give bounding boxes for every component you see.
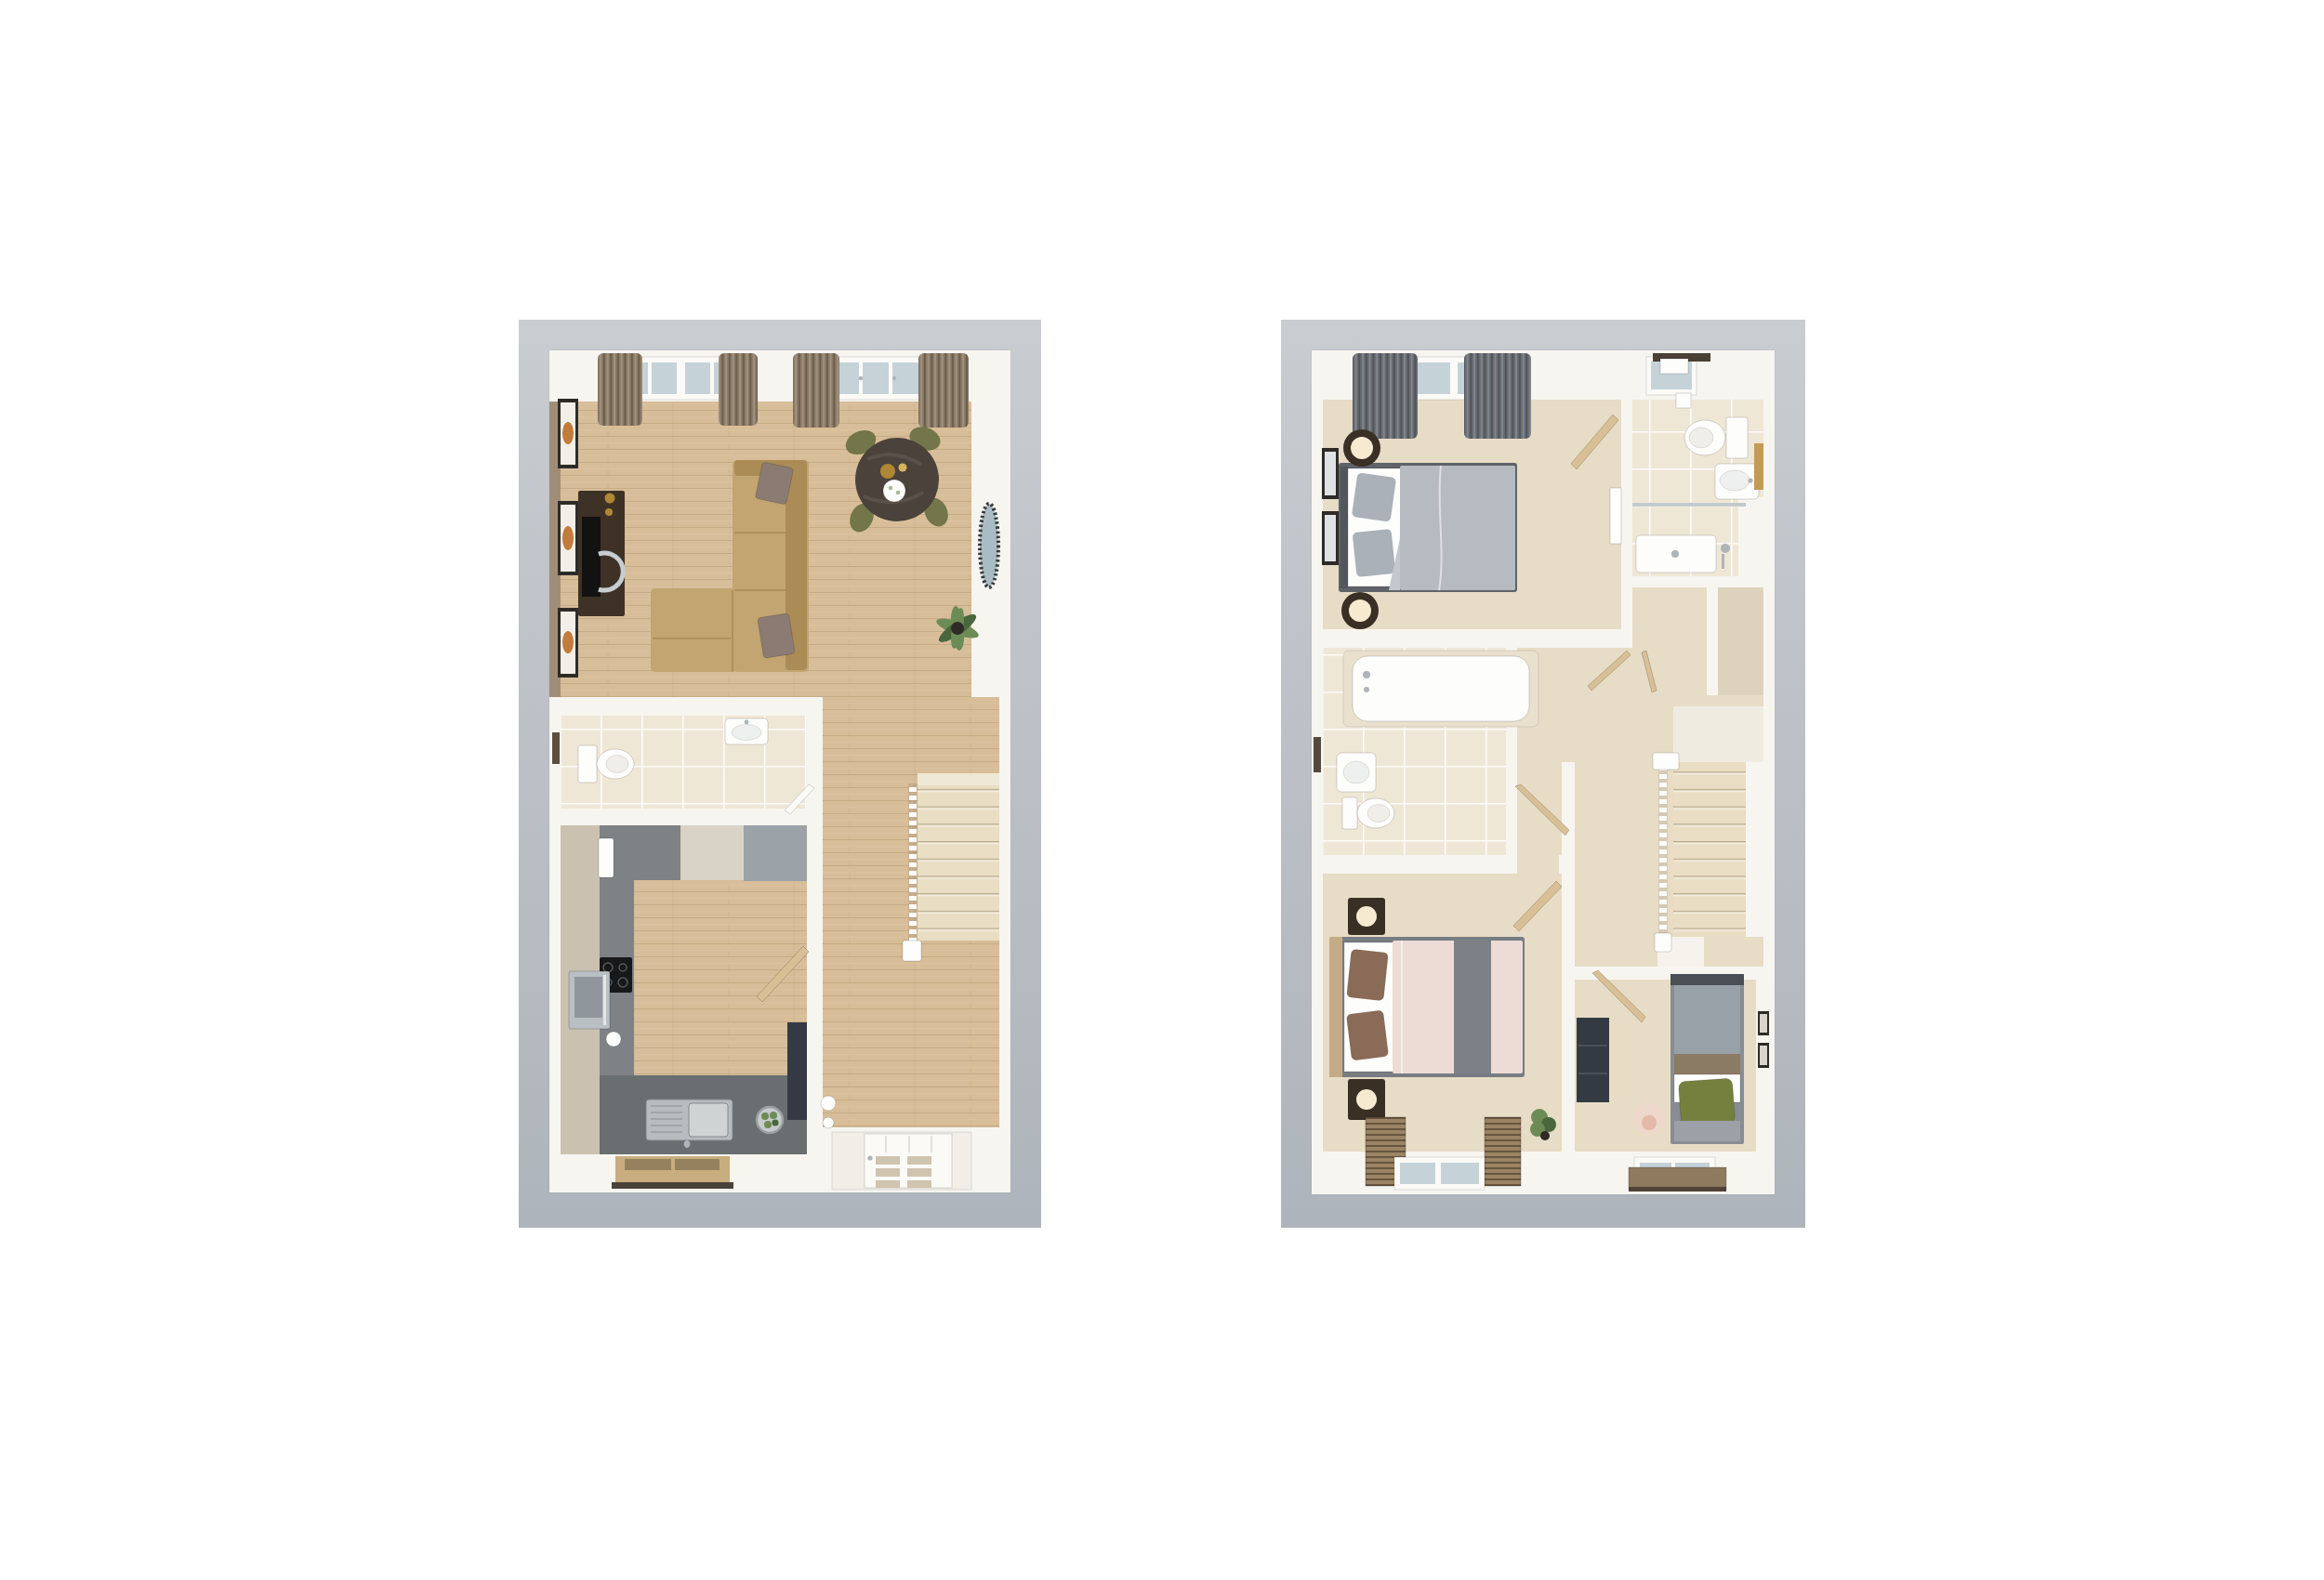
headboard — [1340, 467, 1348, 588]
bathroom-bottom-wall — [1312, 855, 1517, 874]
lamp-glow — [1349, 599, 1371, 622]
cupboard-wall — [1707, 587, 1718, 695]
radiator-slats — [1485, 1117, 1521, 1186]
headboard — [1329, 937, 1342, 1077]
wc-tap — [745, 720, 749, 725]
lamp-glow — [1356, 1089, 1377, 1110]
pillow — [1345, 948, 1389, 1002]
towel-rail — [1314, 737, 1321, 772]
shower-head — [1721, 544, 1730, 553]
curtain-pleats — [918, 353, 969, 428]
curtain-pleats — [1353, 353, 1418, 439]
wall-mirror — [980, 504, 998, 587]
newel-post — [1653, 753, 1679, 770]
kettle — [606, 1032, 621, 1047]
double-bed — [1329, 937, 1525, 1077]
candle — [605, 508, 613, 516]
kitchen-window-board — [612, 1156, 733, 1189]
airing-cupboard — [1718, 587, 1763, 695]
window-pane — [1400, 1163, 1435, 1184]
oven-handle — [603, 975, 606, 1025]
sink-tap-stem — [686, 1140, 689, 1148]
toilet-seat — [606, 756, 628, 773]
sofa-chaise — [651, 588, 736, 672]
flower — [896, 491, 900, 494]
shower-glass — [1632, 503, 1746, 507]
curtain-pleats — [598, 353, 642, 426]
lamp-glow — [1356, 906, 1377, 927]
wc-basin-bowl — [732, 725, 761, 741]
bedroom1-bathroom-wall — [1312, 629, 1632, 648]
picture-art — [562, 526, 574, 550]
first-floor-svg — [1281, 320, 1805, 1228]
picture-art — [1760, 1046, 1767, 1065]
apple — [761, 1113, 769, 1120]
desk-edge — [1629, 1187, 1726, 1192]
bed-runner — [1454, 941, 1491, 1073]
toilet-cistern — [1342, 797, 1357, 829]
wall-units — [680, 825, 744, 880]
flower — [889, 486, 892, 490]
single-bed — [1670, 974, 1744, 1144]
floorplan-sheet — [0, 0, 2324, 1580]
newel-post — [1655, 933, 1671, 952]
desk-shelf — [1629, 1167, 1726, 1190]
stairwell-wall — [1746, 762, 1763, 937]
left-wall — [1312, 400, 1323, 1194]
basin-bowl — [1720, 470, 1750, 491]
gold-dish — [899, 464, 907, 472]
bath-tap — [1363, 671, 1370, 678]
flower-bowl — [883, 480, 905, 502]
shower-hose — [1722, 554, 1724, 569]
front-door — [832, 1132, 971, 1190]
wc-kitchen-wall — [549, 809, 807, 825]
picture-art — [562, 631, 574, 653]
bath-tub — [1353, 656, 1529, 721]
picture-art — [562, 422, 574, 444]
toilet-seat — [1689, 428, 1713, 448]
apple — [770, 1112, 777, 1119]
towel — [1660, 359, 1688, 374]
gold-vase — [880, 464, 895, 479]
picture-art — [1760, 1014, 1767, 1033]
french-door-pane — [892, 362, 918, 394]
hall-right-wall — [999, 697, 1010, 1192]
wc-hall-wall-a — [807, 697, 823, 729]
fruit-bowl — [757, 1107, 783, 1133]
green-cushion — [1678, 1078, 1735, 1126]
bed-end-pad — [1674, 1121, 1740, 1141]
picture-art — [1325, 515, 1336, 561]
newel-post — [903, 941, 921, 961]
front-door-handle — [867, 1155, 872, 1160]
first-floor-plan — [1281, 320, 1805, 1228]
bath-tap — [1364, 687, 1369, 692]
french-door-pane — [863, 362, 889, 394]
ensuite-step-wall — [1738, 497, 1763, 576]
ensuite-bottom-wall — [1621, 576, 1763, 587]
double-bed — [1339, 463, 1517, 592]
oven-door — [574, 977, 602, 1018]
window-pane — [1441, 1163, 1479, 1184]
drawer-unit — [1577, 1018, 1609, 1102]
lamp-glow — [1351, 437, 1373, 459]
vase — [823, 1117, 834, 1128]
toilet-cistern — [1726, 417, 1748, 458]
stair-top-landing — [918, 773, 999, 785]
tv — [582, 517, 601, 597]
french-door-handle — [859, 376, 863, 380]
stairwell-void — [1673, 706, 1763, 762]
basin-tap — [1748, 478, 1752, 482]
plant-pot — [1540, 1131, 1550, 1140]
picture-art — [1325, 452, 1336, 495]
curtain-pleats — [719, 353, 758, 426]
toilet-roll-holder — [1676, 393, 1691, 408]
vase — [821, 1096, 836, 1111]
wc-hall-wall-b — [807, 784, 823, 944]
headboard — [1670, 974, 1744, 985]
french-door-handle — [892, 376, 896, 380]
window-mullion — [648, 362, 652, 394]
dresser — [1610, 488, 1621, 544]
apple — [772, 1119, 778, 1126]
sink-basin — [689, 1103, 728, 1137]
ground-floor-svg — [519, 320, 1041, 1228]
wood-shelf — [1754, 443, 1763, 490]
pink-lamp-base — [1642, 1115, 1657, 1130]
sofa-cushion — [758, 613, 795, 659]
bathroom-right-wall-b — [1506, 836, 1517, 855]
dining-set — [842, 423, 953, 536]
tall-dark-unit — [787, 1022, 807, 1120]
duvet — [1674, 985, 1740, 1054]
staircase-treads — [918, 785, 999, 941]
shower-drain — [1671, 550, 1679, 558]
wall-art — [558, 399, 578, 678]
basin-bowl — [1343, 761, 1369, 783]
ground-floor-plan — [519, 320, 1041, 1228]
pillow — [1352, 528, 1397, 578]
kitchen-hall-wall — [807, 1004, 823, 1154]
bedroom1-ensuite-wall — [1621, 400, 1632, 629]
fridge-unit — [744, 825, 807, 881]
bedroom2-right-wall — [1562, 874, 1575, 1194]
duvet — [1400, 466, 1515, 590]
toilet-seat — [1367, 805, 1390, 823]
curtain-pleats — [1464, 353, 1531, 439]
staircase-treads — [1673, 762, 1746, 937]
living-wc-wall — [549, 697, 823, 716]
window-mullion — [710, 362, 714, 394]
toilet-cistern — [578, 745, 597, 783]
curtain-pleats — [793, 353, 839, 428]
window-mullion — [1452, 362, 1456, 394]
candle — [605, 494, 615, 504]
plant-pot — [951, 622, 964, 635]
apple — [764, 1121, 772, 1128]
kitchen-radiator — [599, 838, 614, 877]
blanket-band — [1674, 1054, 1740, 1074]
towel-radiator — [552, 732, 560, 764]
pillow — [1345, 1009, 1390, 1062]
pillow — [1351, 471, 1398, 523]
